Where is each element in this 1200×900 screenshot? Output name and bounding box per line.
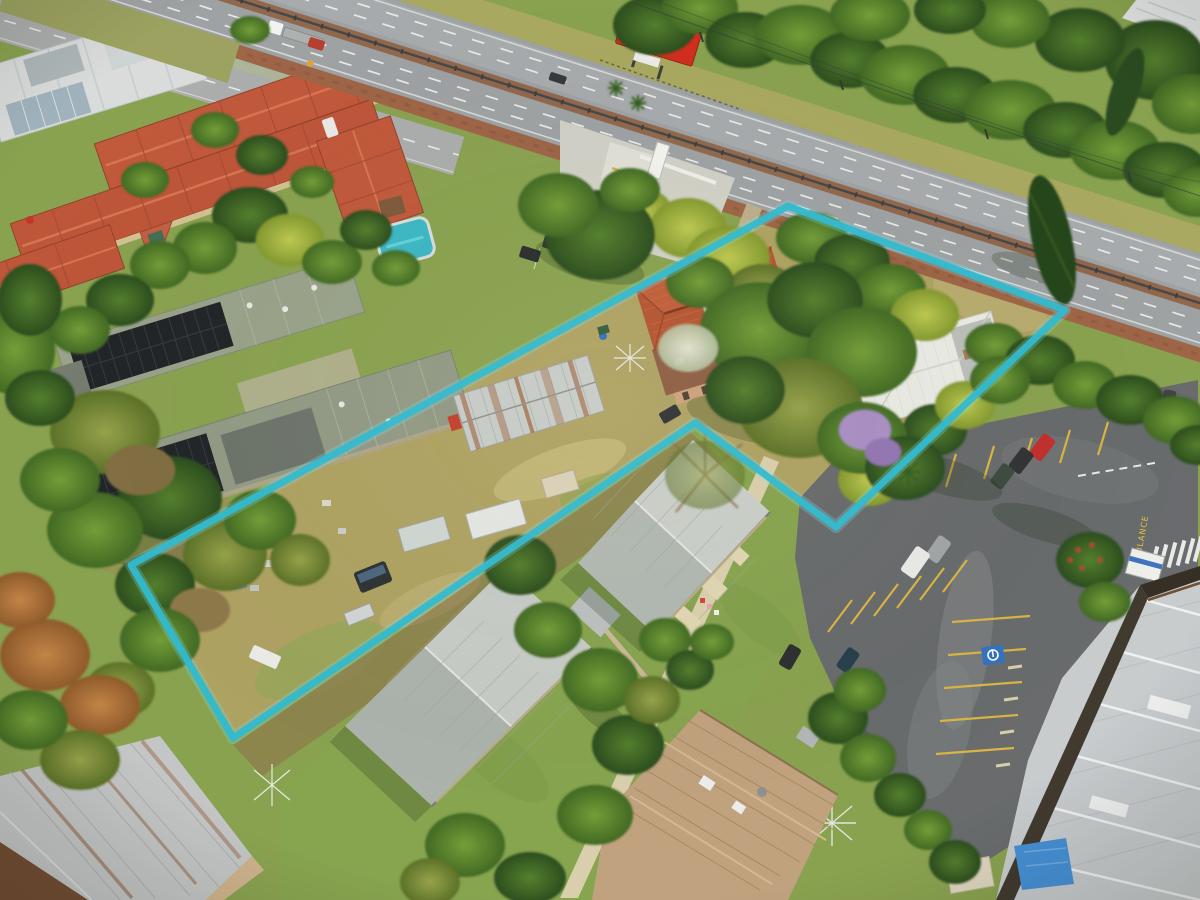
aerial-site-photo: AMBULANCE [0, 0, 1200, 900]
warm-tint [0, 0, 1200, 900]
photo-canvas: AMBULANCE [0, 0, 1200, 900]
